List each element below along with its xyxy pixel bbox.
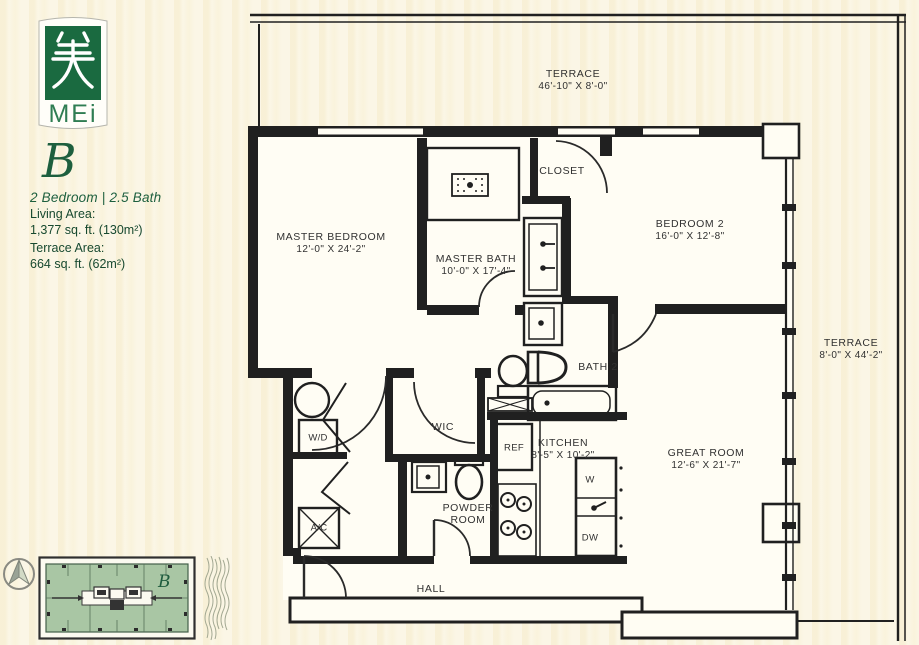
room-label-wic: WIC — [432, 421, 454, 433]
unit-type: 2 Bedroom | 2.5 Bath — [30, 190, 161, 205]
terrace-area: Terrace Area: 664 sq. ft. (62m²) — [30, 240, 125, 272]
room-label-closet: CLOSET — [539, 165, 585, 177]
room-label-bath-2: BATH 2 — [578, 361, 618, 373]
room-label-master-bedroom: MASTER BEDROOM 12'-0" X 24'-2" — [276, 231, 385, 255]
logo-green-square — [45, 26, 101, 100]
room-label-bedroom-2: BEDROOM 2 16'-0" X 12'-8" — [655, 218, 724, 242]
fixture-label-island-sink: W — [585, 475, 594, 486]
room-label-kitchen: KITCHEN 8'-5" X 10'-2" — [531, 437, 594, 461]
north-compass-icon — [2, 556, 36, 592]
fixture-label-washer-dryer: W/D — [308, 433, 327, 444]
living-area: Living Area: 1,377 sq. ft. (130m²) — [30, 206, 143, 238]
unit-letter: B — [42, 138, 77, 186]
key-plan-unit-letter: B — [157, 572, 171, 592]
room-label-terrace-top: TERRACE 46'-10" X 8'-0" — [538, 68, 607, 92]
room-label-powder-room: POWDER ROOM — [443, 502, 494, 526]
mei-logo: MEi — [36, 12, 110, 136]
room-label-master-bath: MASTER BATH 10'-0" X 17'-4" — [436, 253, 517, 277]
living-area-value: 1,377 sq. ft. (130m²) — [30, 222, 143, 238]
water-waves-icon — [204, 556, 230, 642]
room-label-great-room: GREAT ROOM 12'-6" X 21'-7" — [668, 447, 745, 471]
fixture-label-dishwasher: DW — [582, 533, 598, 544]
logo-text: MEi — [48, 100, 97, 128]
terrace-area-label: Terrace Area: — [30, 241, 104, 255]
floorplan-page: TERRACE 46'-10" X 8'-0" MASTER BEDROOM 1… — [0, 0, 919, 645]
room-label-hall: HALL — [417, 583, 446, 595]
floorplan-drawing — [0, 0, 919, 645]
fixture-label-ref: REF — [504, 443, 524, 454]
key-plan: B — [38, 556, 196, 640]
room-label-terrace-right: TERRACE 8'-0" X 44'-2" — [819, 337, 882, 361]
terrace-area-value: 664 sq. ft. (62m²) — [30, 256, 125, 272]
living-area-label: Living Area: — [30, 207, 95, 221]
fixture-label-ac: A/C — [311, 523, 328, 534]
